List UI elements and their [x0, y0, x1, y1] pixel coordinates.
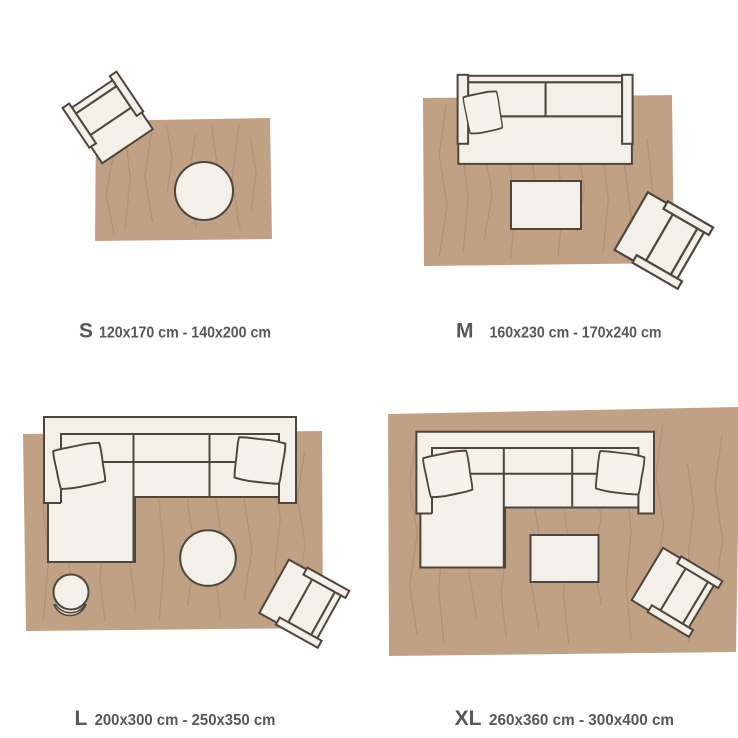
svg-text:120x170 cm - 140x200 cm: 120x170 cm - 140x200 cm [99, 325, 271, 342]
svg-text:160x230 cm - 170x240 cm: 160x230 cm - 170x240 cm [490, 325, 662, 342]
svg-text:L: L [75, 707, 88, 730]
svg-text:XL: XL [455, 707, 482, 730]
svg-text:M: M [456, 320, 474, 343]
svg-text:200x300 cm - 250x350 cm: 200x300 cm - 250x350 cm [95, 712, 276, 729]
svg-text:260x360 cm - 300x400 cm: 260x360 cm - 300x400 cm [489, 712, 674, 729]
svg-text:S: S [79, 320, 93, 343]
